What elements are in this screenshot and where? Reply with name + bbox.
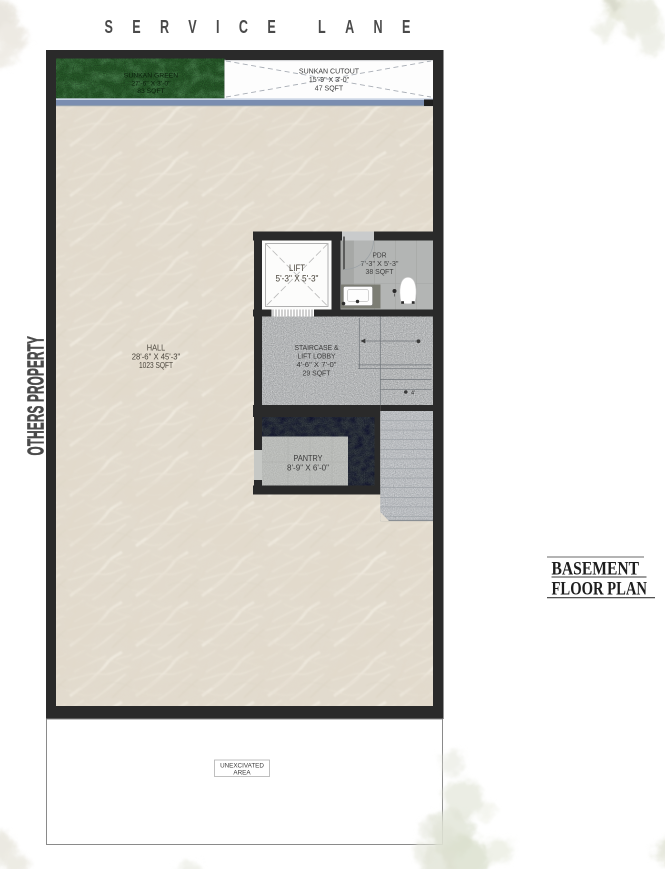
svg-text:15'-9" X 3'-0": 15'-9" X 3'-0": [309, 77, 350, 84]
svg-text:38 SQFT: 38 SQFT: [366, 267, 395, 276]
svg-text:SERVICE LANE: SERVICE LANE: [105, 18, 430, 38]
svg-text:47 SQFT: 47 SQFT: [315, 86, 344, 93]
svg-text:FLOOR PLAN: FLOOR PLAN: [552, 580, 648, 600]
svg-text:UNEXCIVATED: UNEXCIVATED: [220, 763, 264, 770]
svg-text:27'-6" X 3'-0": 27'-6" X 3'-0": [131, 81, 171, 88]
svg-text:1023 SQFT: 1023 SQFT: [139, 360, 173, 370]
svg-text:83 SQFT: 83 SQFT: [137, 88, 165, 95]
svg-text:29 SQFT: 29 SQFT: [303, 369, 332, 378]
svg-text:SUNKAN GREEN: SUNKAN GREEN: [124, 73, 178, 80]
svg-text:OTHERS PROPERTY: OTHERS PROPERTY: [23, 336, 48, 456]
svg-text:SUNKAN CUTOUT: SUNKAN CUTOUT: [299, 69, 360, 76]
svg-text:4': 4': [411, 391, 415, 397]
svg-text:8'-9" X 6'-0": 8'-9" X 6'-0": [287, 464, 329, 473]
svg-text:AREA: AREA: [233, 770, 251, 777]
svg-text:PANTRY: PANTRY: [294, 454, 324, 463]
svg-text:5'-3" X 5'-3": 5'-3" X 5'-3": [276, 274, 319, 284]
svg-text:LIFT: LIFT: [289, 263, 305, 273]
